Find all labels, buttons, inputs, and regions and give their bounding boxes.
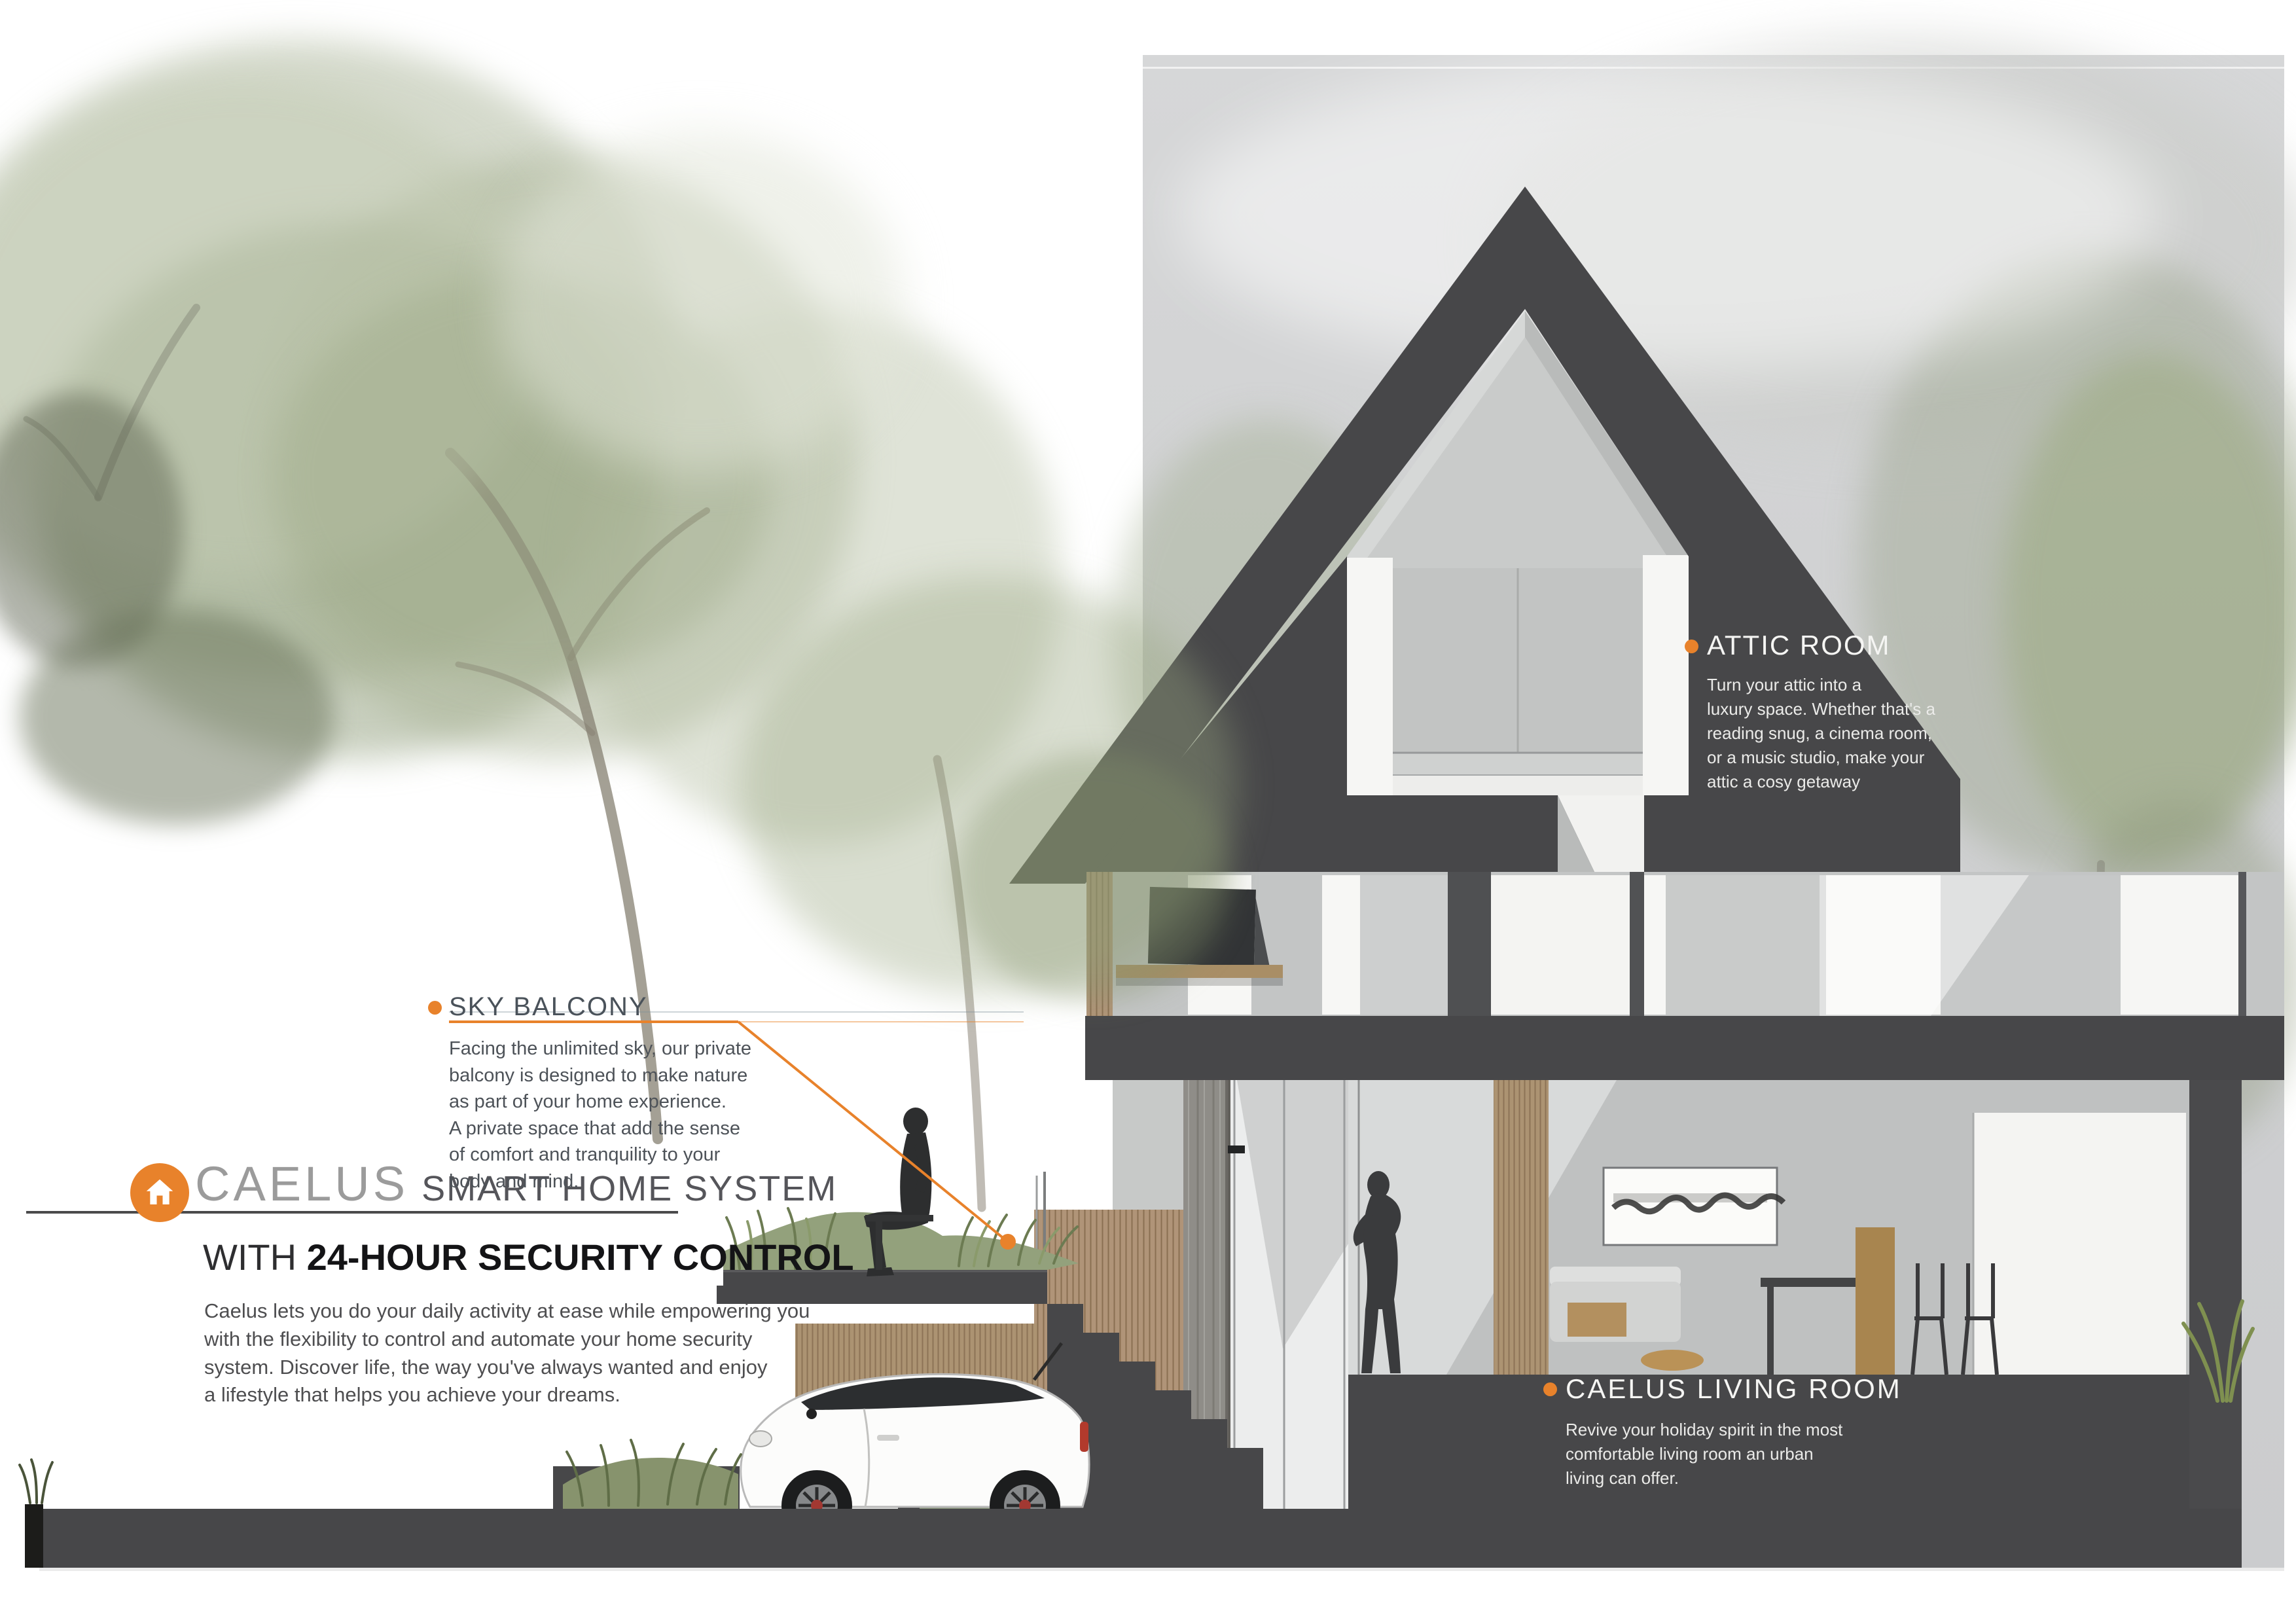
annotation-body-attic-room: Turn your attic into a luxury space. Whe… bbox=[1707, 673, 1935, 794]
living-room-bullet bbox=[1543, 1382, 1557, 1396]
brand-subtitle: WITH 24-HOUR SECURITY CONTROL bbox=[203, 1236, 854, 1278]
sky-balcony-rule bbox=[449, 1020, 738, 1023]
annotation-title-living-room: CAELUS LIVING ROOM bbox=[1566, 1373, 1902, 1405]
house-icon bbox=[142, 1175, 177, 1210]
sky-balcony-rule-extension bbox=[738, 1021, 1024, 1022]
poster-canvas: CAELUS SMART HOME SYSTEM WITH 24-HOUR SE… bbox=[0, 0, 2296, 1624]
brand-description: Caelus lets you do your daily activity a… bbox=[204, 1297, 810, 1409]
brand-name: CAELUS bbox=[195, 1156, 408, 1212]
subtitle-prefix: WITH bbox=[203, 1236, 307, 1278]
subtitle-bold: 24-HOUR SECURITY CONTROL bbox=[307, 1236, 854, 1278]
sky-balcony-bullet bbox=[428, 1001, 442, 1015]
annotation-title-attic-room: ATTIC ROOM bbox=[1707, 630, 1891, 661]
attic-room-bullet bbox=[1685, 640, 1698, 653]
brand-logo bbox=[130, 1163, 189, 1222]
annotation-title-sky-balcony: SKY BALCONY bbox=[449, 992, 648, 1022]
annotation-body-living-room: Revive your holiday spirit in the most c… bbox=[1566, 1418, 1842, 1490]
annotation-body-sky-balcony: Facing the unlimited sky, our private ba… bbox=[449, 1036, 751, 1195]
